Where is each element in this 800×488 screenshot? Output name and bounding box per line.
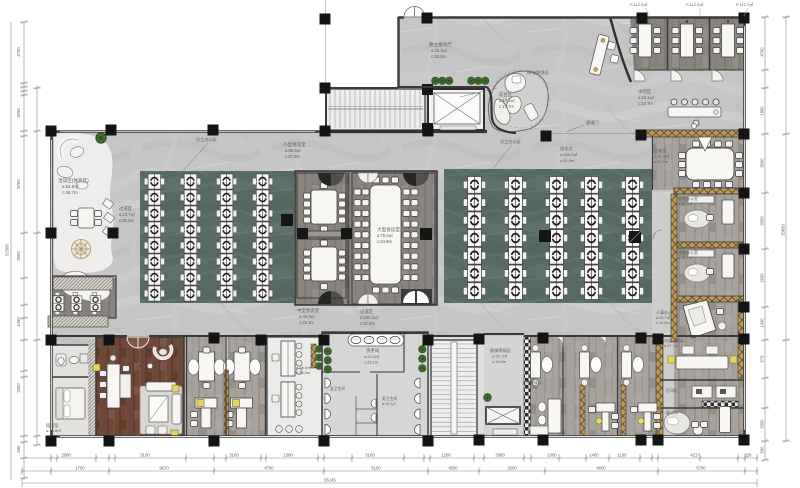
- svg-text:a:54.6㎡: a:54.6㎡: [62, 183, 79, 189]
- svg-text:c:22.7m: c:22.7m: [654, 159, 669, 164]
- svg-text:a:19.1㎡: a:19.1㎡: [678, 255, 693, 260]
- svg-text:洽谈区(休息区): 洽谈区(休息区): [58, 177, 89, 184]
- svg-text:过道区: 过道区: [119, 205, 133, 212]
- svg-text:a:17.1㎡: a:17.1㎡: [499, 97, 516, 103]
- svg-text:1200: 1200: [441, 452, 451, 457]
- svg-text:c:48.7m: c:48.7m: [62, 190, 78, 195]
- svg-text:前台区: 前台区: [499, 91, 513, 98]
- svg-text:2600: 2600: [495, 452, 505, 457]
- svg-text:a:23.7㎡: a:23.7㎡: [119, 211, 136, 217]
- svg-text:c:23.9m: c:23.9m: [296, 370, 311, 375]
- svg-text:1000: 1000: [547, 452, 557, 457]
- svg-text:1800: 1800: [760, 106, 765, 116]
- svg-text:a:31.0㎡: a:31.0㎡: [654, 153, 669, 159]
- svg-text:c:91.0m: c:91.0m: [360, 321, 375, 326]
- svg-text:5150: 5150: [371, 465, 381, 470]
- svg-text:1750: 1750: [75, 465, 85, 470]
- svg-text:a:24.0㎡: a:24.0㎡: [364, 353, 379, 359]
- svg-text:F:112.2㎡: F:112.2㎡: [736, 1, 753, 7]
- svg-text:5100: 5100: [140, 452, 150, 457]
- svg-text:经理办公室: 经理办公室: [678, 249, 698, 255]
- svg-text:a:32.2㎡: a:32.2㎡: [431, 47, 448, 53]
- svg-text:573: 573: [760, 355, 765, 363]
- svg-text:a:15.1㎡: a:15.1㎡: [638, 94, 655, 100]
- svg-text:a:45.0㎡: a:45.0㎡: [299, 313, 316, 319]
- svg-text:过道区: 过道区: [360, 308, 374, 315]
- svg-text:1400: 1400: [760, 318, 765, 328]
- svg-text:3300: 3300: [16, 383, 21, 393]
- svg-text:2600: 2600: [16, 251, 21, 261]
- svg-text:a:180.3㎡: a:180.3㎡: [560, 151, 577, 157]
- svg-text:4217: 4217: [690, 452, 700, 457]
- svg-text:4550: 4550: [448, 465, 458, 470]
- svg-text:4700: 4700: [760, 47, 765, 57]
- svg-text:通道门: 通道门: [586, 119, 599, 126]
- svg-text:2600: 2600: [760, 216, 765, 226]
- svg-text:c:24.7m: c:24.7m: [638, 101, 653, 106]
- svg-text:中型会议室: 中型会议室: [297, 307, 320, 314]
- svg-text:员工办公区: 员工办公区: [500, 138, 521, 145]
- svg-text:5100: 5100: [365, 452, 375, 457]
- svg-text:a:15.7㎡: a:15.7㎡: [524, 385, 539, 390]
- svg-text:3100: 3100: [229, 452, 239, 457]
- svg-text:220: 220: [745, 452, 753, 457]
- svg-text:2050: 2050: [16, 108, 21, 118]
- svg-text:a:180.3㎡: a:180.3㎡: [360, 314, 379, 320]
- svg-text:c:25.0m: c:25.0m: [431, 54, 446, 59]
- svg-text:c:91.0m: c:91.0m: [560, 158, 575, 163]
- svg-text:面试间: 面试间: [666, 409, 678, 415]
- svg-text:a:25.7㎡: a:25.7㎡: [492, 353, 507, 359]
- svg-text:c:37.9m: c:37.9m: [285, 154, 300, 159]
- svg-text:52300: 52300: [5, 244, 10, 256]
- svg-text:5750: 5750: [16, 179, 21, 189]
- svg-text:9670: 9670: [159, 465, 169, 470]
- svg-text:公共等候区: 公共等候区: [522, 379, 542, 385]
- svg-text:600: 600: [16, 445, 21, 453]
- svg-text:a:15.0㎡: a:15.0㎡: [382, 401, 396, 406]
- svg-text:独立接待厅: 独立接待厅: [429, 41, 452, 48]
- svg-text:a:15.8㎡: a:15.8㎡: [46, 427, 61, 433]
- svg-text:接待/休息区: 接待/休息区: [527, 69, 549, 76]
- svg-text:员工办公区: 员工办公区: [196, 136, 217, 143]
- svg-text:a:85.5㎡: a:85.5㎡: [285, 147, 302, 153]
- svg-text:4700: 4700: [264, 465, 274, 470]
- svg-text:4600: 4600: [596, 465, 606, 470]
- svg-text:经理办公室: 经理办公室: [678, 195, 698, 201]
- svg-text:c:95.0m: c:95.0m: [119, 218, 134, 223]
- svg-text:a:17.1㎡: a:17.1㎡: [664, 343, 679, 348]
- svg-text:3300: 3300: [760, 419, 765, 429]
- svg-text:c:17.7m: c:17.7m: [499, 104, 514, 109]
- svg-text:1450: 1450: [16, 317, 21, 327]
- svg-text:a:75.0㎡: a:75.0㎡: [377, 232, 394, 238]
- svg-text:女卫生间: 女卫生间: [330, 386, 345, 391]
- svg-text:20850: 20850: [781, 224, 786, 236]
- svg-text:F:112.2㎡: F:112.2㎡: [630, 1, 647, 7]
- svg-text:3600: 3600: [760, 158, 765, 168]
- svg-text:a:19.1㎡: a:19.1㎡: [678, 201, 693, 206]
- svg-text:F:112.2㎡: F:112.2㎡: [686, 1, 703, 7]
- svg-text:1400: 1400: [589, 452, 599, 457]
- svg-text:500: 500: [760, 446, 765, 454]
- svg-text:打印区: 打印区: [666, 387, 678, 393]
- svg-text:组长位: 组长位: [560, 145, 573, 152]
- svg-text:4700: 4700: [16, 47, 21, 57]
- svg-text:5790: 5790: [696, 465, 706, 470]
- svg-text:男卫生间: 男卫生间: [382, 396, 397, 401]
- svg-text:2600: 2600: [507, 465, 517, 470]
- svg-text:c:15.0m: c:15.0m: [492, 359, 507, 364]
- svg-text:c:34.9m: c:34.9m: [377, 239, 392, 244]
- svg-text:洗手间: 洗手间: [366, 347, 379, 354]
- svg-text:2600: 2600: [760, 273, 765, 283]
- svg-text:2600: 2600: [61, 452, 71, 457]
- svg-text:大型会议室: 大型会议室: [377, 226, 400, 233]
- svg-text:55145: 55145: [324, 477, 336, 482]
- svg-text:小型会议室: 小型会议室: [283, 141, 306, 148]
- svg-text:1100: 1100: [617, 452, 627, 457]
- svg-text:水吧区: 水吧区: [638, 88, 652, 94]
- svg-text:c:25.1m: c:25.1m: [364, 360, 379, 365]
- svg-text:c:15.0m: c:15.0m: [656, 321, 670, 325]
- svg-text:1500: 1500: [283, 452, 293, 457]
- svg-text:a:15.7㎡: a:15.7㎡: [656, 315, 671, 320]
- svg-text:c:25.1m: c:25.1m: [299, 320, 314, 325]
